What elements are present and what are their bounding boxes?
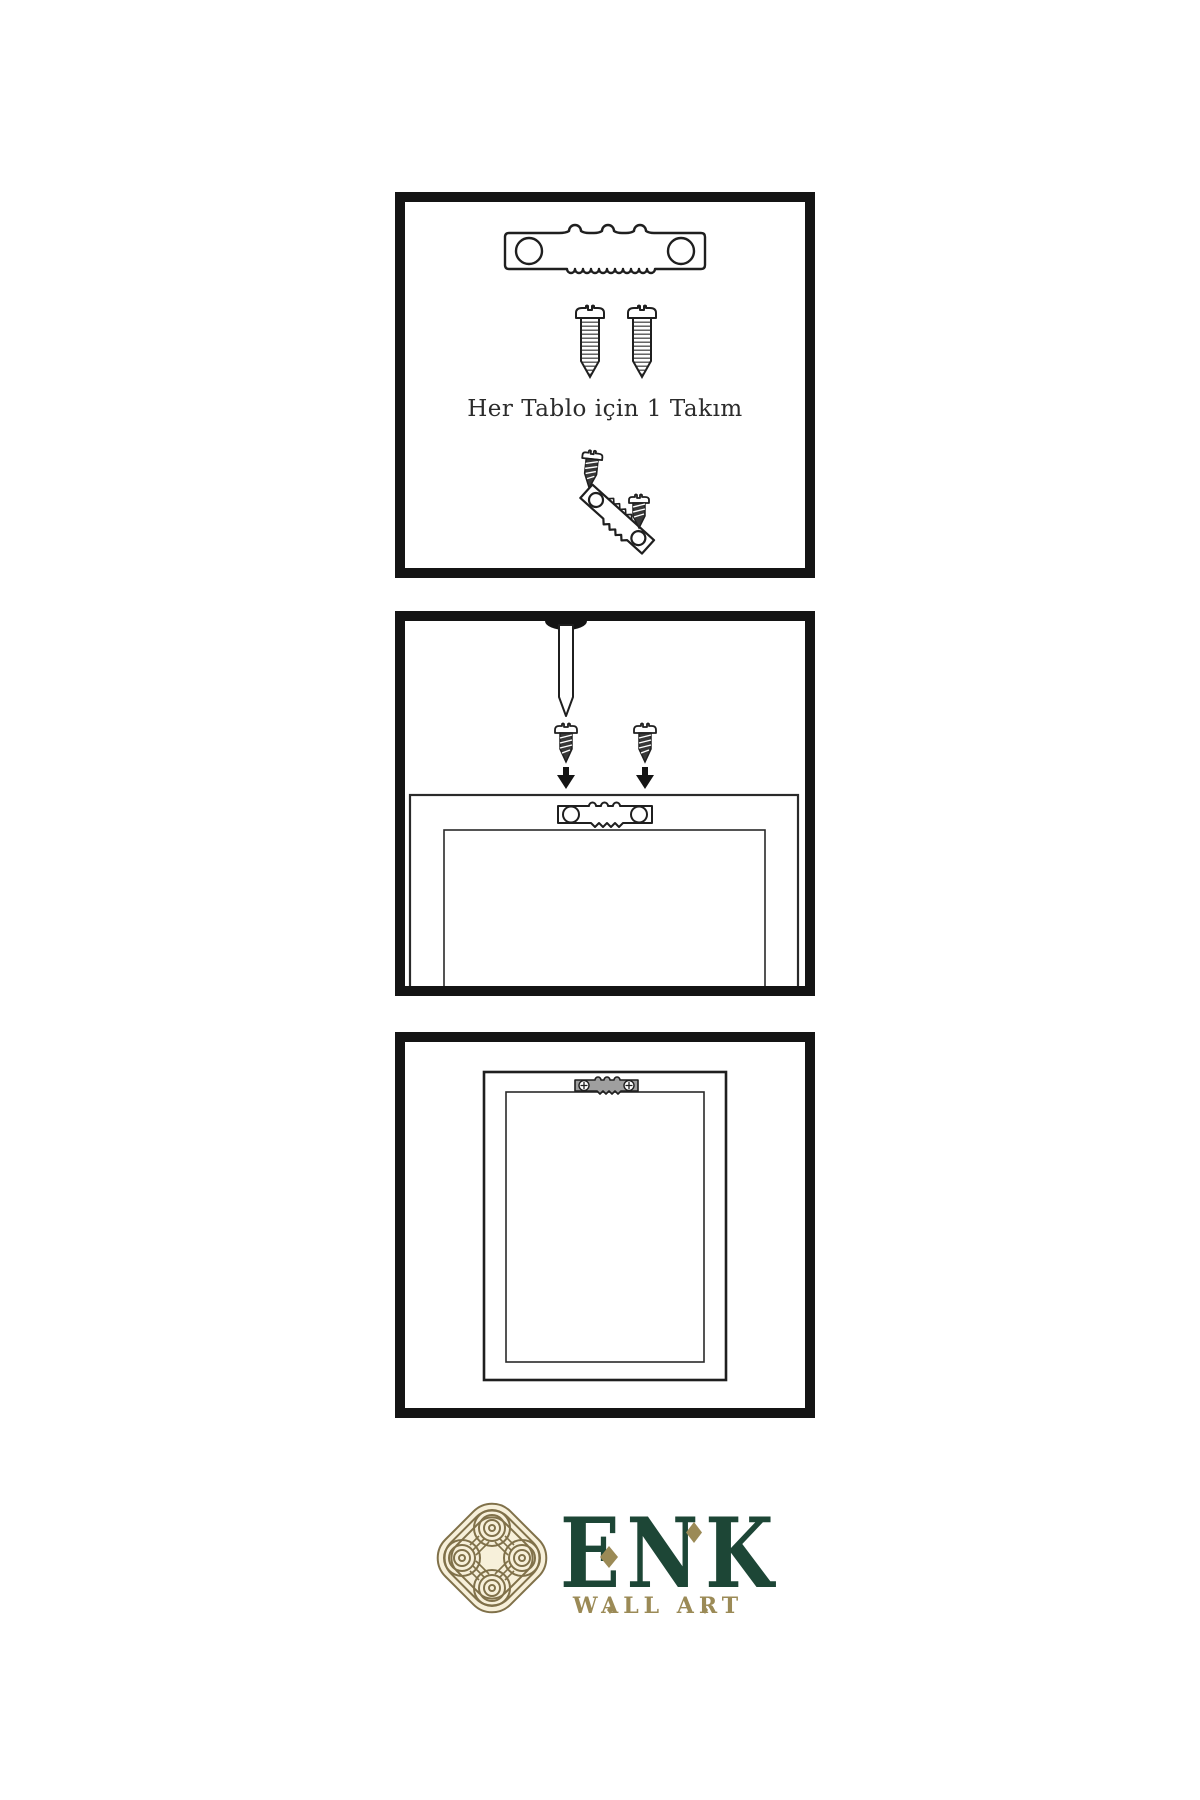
sawtooth-hanger-icon [558, 803, 652, 828]
instruction-sheet: Her Tablo için 1 Takım [0, 0, 1200, 1800]
mounting-screw-icon [579, 450, 603, 489]
screw-with-arrow-right [634, 724, 656, 790]
sawtooth-hanger-icon [505, 225, 705, 273]
panel-step-1-hardware-kit: Her Tablo için 1 Takım [395, 192, 815, 578]
panel-1-illustration [405, 202, 805, 568]
panel-3-illustration [405, 1042, 805, 1408]
installed-hanger-icon [575, 1077, 638, 1094]
screw-icon [634, 724, 656, 763]
down-arrow-icon [636, 767, 654, 789]
tilted-hanger-icon [578, 482, 657, 557]
knot-emblem-icon [426, 1487, 558, 1629]
screw-icon [576, 306, 604, 378]
brand-subtitle: WALL ART [556, 1595, 760, 1617]
screw-with-arrow-left [555, 724, 577, 790]
down-arrow-icon [557, 767, 575, 789]
screw-icon [555, 724, 577, 763]
panel-step-2-mounting [395, 611, 815, 996]
frame-front-icon [484, 1072, 726, 1380]
panel-step-3-hung-frame [395, 1032, 815, 1418]
screw-icon [628, 306, 656, 378]
panel-2-illustration [405, 621, 805, 986]
kit-caption: Her Tablo için 1 Takım [405, 396, 805, 422]
brand-name: ENK [560, 1506, 780, 1602]
hanger-assembly-group [578, 450, 657, 557]
nail-icon [559, 625, 573, 716]
